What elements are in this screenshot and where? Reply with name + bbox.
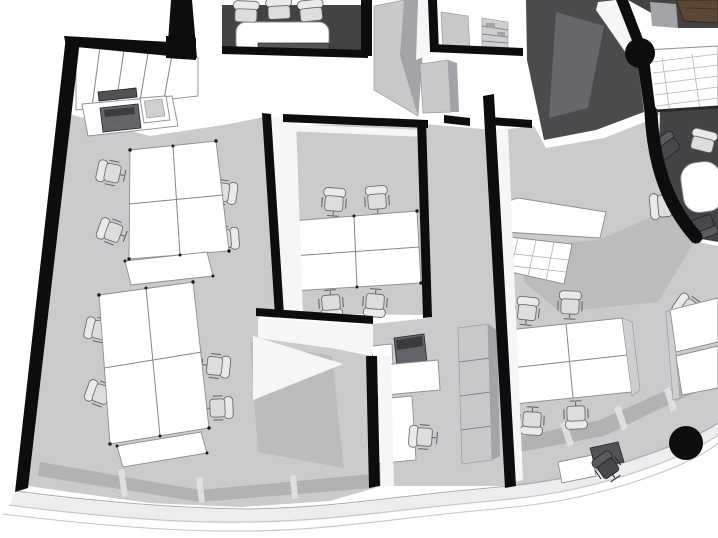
conference-chair <box>233 1 260 23</box>
conference-room-north <box>222 0 362 53</box>
conference-chair <box>265 0 292 20</box>
desk-cluster <box>99 282 209 444</box>
conference-chair <box>297 0 325 22</box>
shelf-item <box>497 32 505 36</box>
corridor-north-wall <box>444 115 470 126</box>
wall-sliver <box>416 0 430 60</box>
glass-panels <box>645 46 718 116</box>
round-column <box>625 38 655 68</box>
glass-floor-ne <box>645 46 718 116</box>
conference-east-wall <box>361 0 372 56</box>
round-column <box>669 426 703 460</box>
floorplan-render-canvas <box>0 0 718 538</box>
storage-cabinet <box>441 12 470 50</box>
corridor-north-wall <box>490 117 532 128</box>
open-bin-inner <box>144 99 165 118</box>
wall-slab <box>420 60 451 113</box>
floorplan-3d-render <box>0 0 718 538</box>
meeting-room-northeast <box>628 0 718 28</box>
printer <box>100 104 141 132</box>
north-wall-stub <box>167 0 197 58</box>
sideboard <box>650 2 678 28</box>
storage-room-north <box>438 0 524 50</box>
shelf-item <box>486 23 495 28</box>
